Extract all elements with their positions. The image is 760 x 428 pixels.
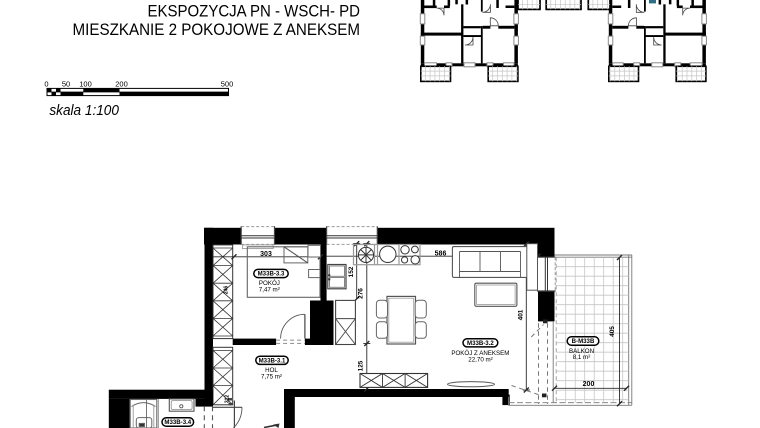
svg-text:100: 100 (79, 80, 92, 89)
svg-text:M33B-3.2: M33B-3.2 (467, 340, 494, 347)
svg-text:0: 0 (44, 80, 48, 89)
svg-text:401: 401 (517, 309, 524, 320)
svg-text:7,75 m²: 7,75 m² (261, 373, 282, 380)
svg-text:EKSPOZYCJA PN - WSCH- PD: EKSPOZYCJA PN - WSCH- PD (148, 2, 361, 21)
svg-text:22,70 m²: 22,70 m² (468, 357, 492, 364)
svg-text:MIESZKANIE 2 POKOJOWE Z ANEKSE: MIESZKANIE 2 POKOJOWE Z ANEKSEM (73, 20, 361, 39)
svg-text:8,1 m²: 8,1 m² (573, 354, 591, 361)
svg-text:7,47 m²: 7,47 m² (259, 287, 280, 294)
svg-text:200: 200 (583, 381, 595, 388)
svg-text:M33B-3.1: M33B-3.1 (259, 358, 286, 365)
svg-text:B-M33B: B-M33B (572, 338, 595, 345)
svg-text:200: 200 (115, 80, 128, 89)
svg-text:303: 303 (260, 251, 272, 258)
svg-text:125: 125 (358, 360, 365, 371)
svg-text:skala 1:100: skala 1:100 (49, 102, 119, 119)
svg-text:152: 152 (348, 266, 355, 277)
svg-text:M33B-3.4: M33B-3.4 (164, 419, 191, 426)
svg-text:500: 500 (221, 80, 234, 89)
svg-text:50: 50 (62, 80, 70, 89)
svg-text:586: 586 (435, 250, 447, 257)
svg-text:405: 405 (609, 326, 616, 337)
svg-text:M33B-3.3: M33B-3.3 (258, 271, 285, 278)
svg-text:276: 276 (358, 288, 365, 299)
svg-text:246: 246 (224, 286, 230, 295)
